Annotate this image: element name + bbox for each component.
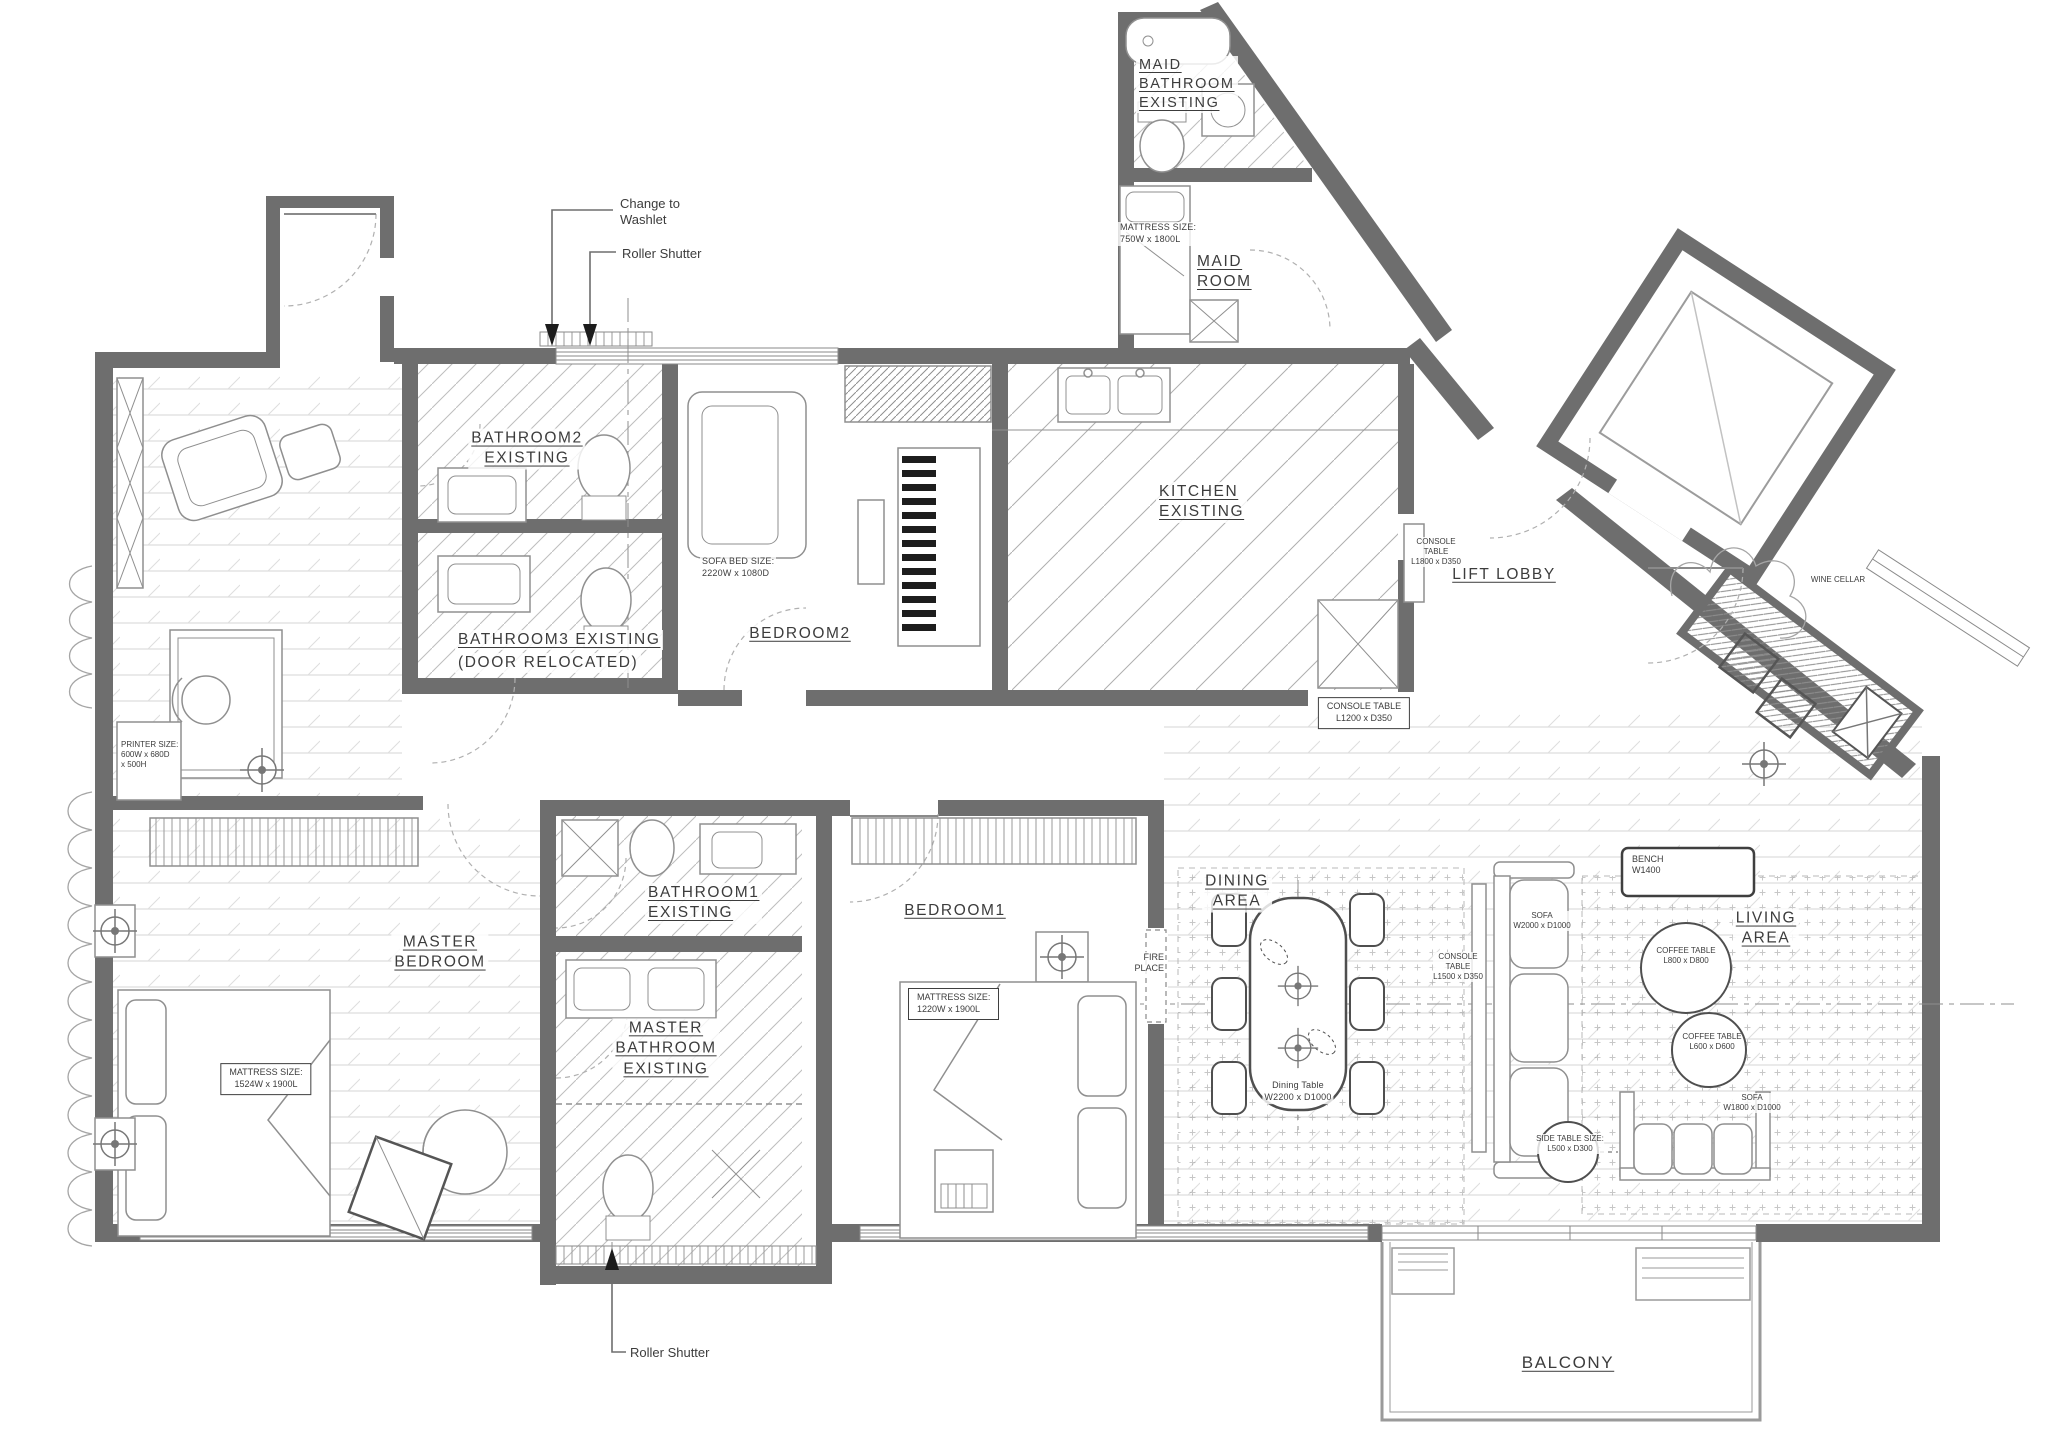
sofa1800-cushion <box>1634 1124 1672 1174</box>
wall-bedroom1-top-a <box>832 800 850 816</box>
pillow <box>1078 996 1126 1096</box>
master-sink <box>648 968 704 1010</box>
console-1800-note: CONSOLE TABLE L1800 x D350 <box>1411 537 1461 567</box>
master-toilet <box>603 1155 653 1221</box>
sofa2000-cushion <box>1510 974 1568 1062</box>
bathroom2-sink <box>448 476 516 514</box>
bathroom3-toilet <box>581 568 631 632</box>
sofa1800-cushion <box>1674 1124 1712 1174</box>
wall-top-b <box>838 348 1130 364</box>
bathroom2-cistern <box>582 496 626 520</box>
floor-plan-drawing <box>0 0 2060 1440</box>
window-top <box>556 348 838 364</box>
wall-bathblock1-left <box>540 800 556 1285</box>
wall-vestibule-left <box>266 196 280 364</box>
wall-bathblock-left <box>402 352 418 694</box>
wall-bedroom2-bottom-a <box>678 690 742 706</box>
master-wardrobe <box>150 818 418 866</box>
bathroom3-label: BATHROOM3 EXISTING <box>455 630 663 650</box>
wall-bedroom2-bottom-b <box>806 690 1008 706</box>
wall-bedroom2-kitchen <box>992 364 1008 690</box>
maid-mattress-note: MATTRESS SIZE: 750W x 1800L <box>1118 222 1198 246</box>
wall-masterbath-bottom <box>540 1266 832 1284</box>
wall-foyer-diagonal <box>1404 338 1494 440</box>
bathroom3-label-line2: (DOOR RELOCATED) <box>455 653 641 673</box>
faucet <box>1136 369 1144 377</box>
wall-vestibule-top <box>266 196 394 208</box>
kitchen-label: KITCHEN EXISTING <box>1156 482 1247 523</box>
sink-bowl <box>1118 376 1162 414</box>
piano-bench <box>858 500 884 584</box>
entry-door-swing <box>284 214 376 306</box>
wall-masterbath-stub-r <box>816 1242 832 1270</box>
wall-vestibule-right <box>380 196 394 258</box>
wall-bathblock1-top <box>556 800 832 816</box>
bedroom1-mattress-note: MATTRESS SIZE: 1220W x 1900L <box>908 988 999 1020</box>
sink-bowl <box>1066 376 1110 414</box>
wall-bedroom2-left <box>662 352 678 694</box>
lift-lobby-label: LIFT LOBBY <box>1449 565 1559 585</box>
master-mattress-note: MATTRESS SIZE: 1524W x 1900L <box>220 1063 311 1095</box>
dining-chair <box>1350 978 1384 1030</box>
wall-left <box>95 352 113 1242</box>
washlet-annotation: Change to Washlet <box>620 196 680 229</box>
coffee-table-800 <box>1641 923 1731 1013</box>
bedroom2-door-swing <box>724 608 806 690</box>
wall-kitchen-right-a <box>1398 364 1414 514</box>
balcony-label: BALCONY <box>1519 1352 1617 1374</box>
roller-shutter-bottom-band <box>556 1246 816 1264</box>
roller-shutter-annotation-bottom: Roller Shutter <box>630 1345 709 1361</box>
washlet-leader-line <box>552 210 613 324</box>
dining-area-label: DINING AREA <box>1202 872 1272 913</box>
wall-top-left <box>95 352 280 368</box>
sofa1800-arm <box>1620 1092 1634 1176</box>
bench-note: BENCH W1400 <box>1632 854 1664 877</box>
wall-vestibule-right2 <box>380 296 394 362</box>
desk-chair <box>182 676 230 724</box>
dining-chair <box>1212 978 1246 1030</box>
wall-bedroom1-left <box>816 800 832 1242</box>
wall-right <box>1922 756 1940 1242</box>
window-angled-right <box>1867 550 2030 666</box>
maid-bathroom-label: MAID BATHROOM EXISTING <box>1136 56 1238 113</box>
sofa-bed-note: SOFA BED SIZE: 2220W x 1080D <box>700 556 776 580</box>
dining-chair <box>1350 1062 1384 1114</box>
bathroom1-sink <box>712 832 762 868</box>
revision-cloud-left <box>68 792 92 1246</box>
roller-shutter-top-band <box>540 332 652 346</box>
faucet <box>1084 369 1092 377</box>
maid-toilet <box>1140 120 1184 172</box>
living-area-label: LIVING AREA <box>1733 909 1799 950</box>
bathroom2-toilet <box>578 435 630 501</box>
bathroom2-label: BATHROOM2 EXISTING <box>468 429 585 470</box>
tub-drain <box>1143 36 1153 46</box>
sofa-bed-cushion <box>702 406 778 544</box>
balcony-sliding-door <box>1382 1226 1756 1240</box>
console-table-1500 <box>1472 884 1486 1152</box>
bedroom1-furniture <box>852 818 1136 1238</box>
balcony-outline <box>1382 1242 1760 1420</box>
bedroom2-label: BEDROOM2 <box>746 624 854 644</box>
floor-plan: Change to Washlet Roller Shutter Roller … <box>0 0 2060 1440</box>
sofa-2000-note: SOFA W2000 x D1000 <box>1513 911 1570 931</box>
maid-room-label: MAID ROOM <box>1194 252 1255 293</box>
pillow <box>126 1000 166 1104</box>
revision-cloud-left-upper <box>70 566 93 708</box>
fireplace <box>1144 928 1168 1024</box>
bedroom2-closet <box>845 366 991 422</box>
bedroom1-wardrobe <box>852 818 1136 864</box>
wall-bedroom1-top-b <box>938 800 1164 816</box>
sofa-1800-note: SOFA W1800 x D1000 <box>1723 1093 1780 1113</box>
roller-shutter-leader-line <box>590 252 616 324</box>
coffee-table-800-note: COFFEE TABLE L800 x D800 <box>1656 946 1715 966</box>
bedroom2-furniture <box>688 366 991 646</box>
console-1200-note: CONSOLE TABLE L1200 x D350 <box>1318 697 1410 729</box>
lift <box>1543 239 1885 583</box>
side-table-note: SIDE TABLE SIZE: L500 x D300 <box>1536 1134 1604 1154</box>
maid-room-door-swing <box>1250 250 1330 330</box>
coffee-table-600-note: COFFEE TABLE L600 x D600 <box>1682 1032 1741 1052</box>
fireplace-label: FIRE PLACE <box>1108 952 1164 975</box>
dining-chair <box>1212 1062 1246 1114</box>
wall-bath1-divider <box>556 936 802 952</box>
bathroom3-sink <box>448 564 520 604</box>
bedroom1-label: BEDROOM1 <box>901 901 1009 921</box>
printer-note: PRINTER SIZE: 600W x 680D x 500H <box>121 740 178 770</box>
bathroom1-toilet <box>630 820 674 876</box>
sofa1800-cushion <box>1714 1124 1752 1174</box>
master-bathroom-label: MASTER BATHROOM EXISTING <box>612 1018 719 1079</box>
master-cistern <box>606 1216 650 1240</box>
master-sink <box>574 968 630 1010</box>
sofa2000-back <box>1494 876 1510 1162</box>
wall-bathblock-bottom <box>402 678 678 694</box>
wall-kitchen-bottom <box>1008 690 1308 706</box>
bathroom1-label: BATHROOM1 EXISTING <box>645 883 762 924</box>
wall-kitchen-top <box>1128 348 1410 364</box>
master-bedroom-label: MASTER BEDROOM <box>391 933 488 974</box>
dining-table-note: Dining Table W2200 x D1000 <box>1262 1080 1333 1104</box>
wall-masterbath-stub-l <box>540 1242 556 1270</box>
dining-chair <box>1350 894 1384 946</box>
console-1500-note: CONSOLE TABLE L1500 x D350 <box>1433 952 1483 982</box>
wine-cellar-label: WINE CELLAR <box>1811 575 1865 585</box>
roller-shutter-annotation-top: Roller Shutter <box>622 246 701 262</box>
pillow <box>1078 1108 1126 1208</box>
wall-top-a <box>394 348 556 364</box>
wall-bottom-c <box>1756 1224 1940 1242</box>
maid-pillow <box>1126 192 1184 222</box>
